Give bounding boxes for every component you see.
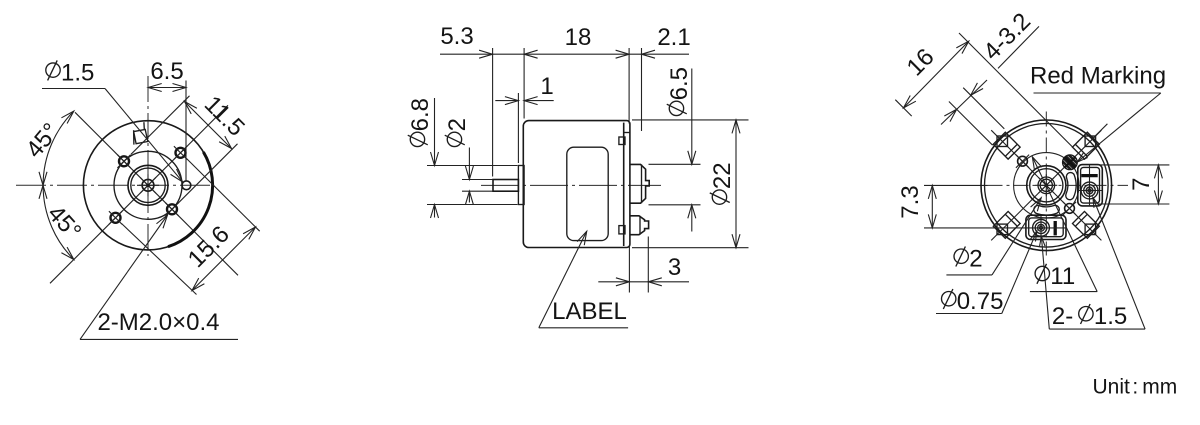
svg-text:22: 22 [709,162,736,189]
svg-text:6.5: 6.5 [666,67,693,100]
svg-text:LABEL: LABEL [552,298,627,325]
svg-text:2-: 2- [1052,303,1073,330]
svg-text:5.3: 5.3 [440,23,473,50]
svg-text:1.5: 1.5 [61,59,94,86]
svg-text:18: 18 [565,24,592,51]
svg-text:1: 1 [540,73,553,100]
svg-text:7: 7 [1128,178,1155,191]
svg-text:6.8: 6.8 [407,98,434,131]
svg-text:1.5: 1.5 [1094,303,1127,330]
svg-text:2: 2 [969,246,982,273]
svg-text:3: 3 [668,254,681,281]
svg-text:Unit:mm: Unit:mm [1093,376,1178,399]
svg-text:2.1: 2.1 [657,24,690,51]
svg-text:0.75: 0.75 [957,288,1004,315]
svg-text:6.5: 6.5 [150,58,183,85]
svg-text:2: 2 [444,118,471,131]
svg-text:Red Marking: Red Marking [1030,63,1166,90]
svg-text:7.3: 7.3 [897,185,924,218]
svg-text:11: 11 [1050,263,1075,290]
svg-text:2-M2.0×0.4: 2-M2.0×0.4 [97,309,219,336]
